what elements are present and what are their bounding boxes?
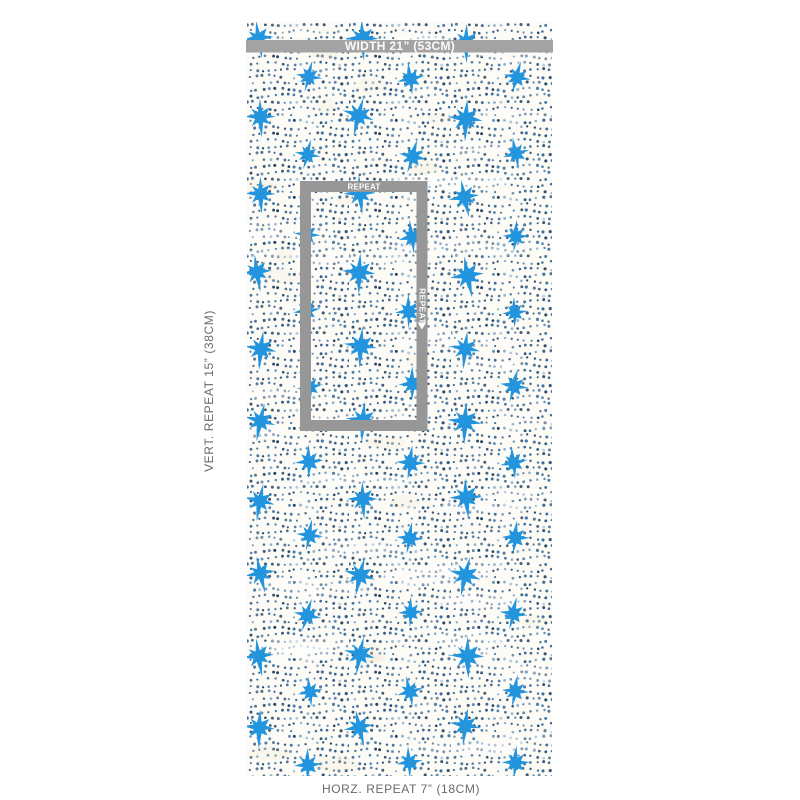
svg-text:REPEAT: REPEAT	[417, 288, 427, 324]
svg-text:WIDTH 21” (53CM): WIDTH 21” (53CM)	[345, 39, 455, 53]
svg-text:REPEAT: REPEAT	[347, 183, 380, 192]
